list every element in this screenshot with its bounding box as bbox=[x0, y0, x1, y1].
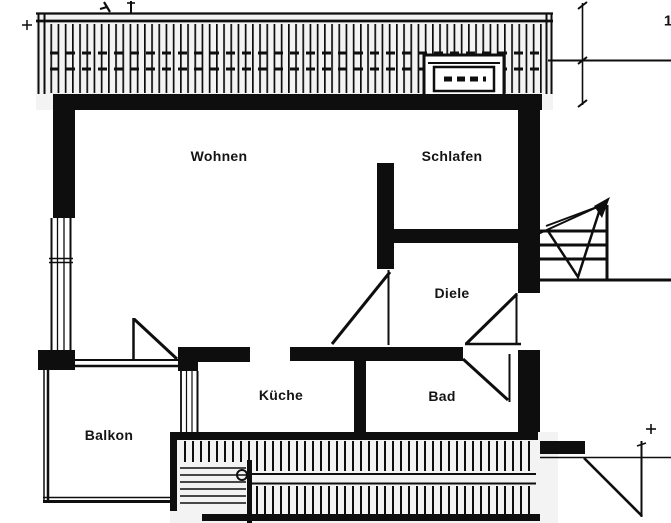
kitchen-balcony-window bbox=[181, 371, 198, 432]
page-number: 1 bbox=[664, 13, 671, 30]
terrace-stairs-hatch-bottom bbox=[170, 432, 558, 523]
staircase-with-direction-arrow bbox=[538, 197, 671, 281]
balcony-window-sill bbox=[75, 360, 178, 366]
window-left bbox=[49, 218, 73, 350]
balcony-door-swing bbox=[134, 318, 178, 360]
room-label-kueche: Küche bbox=[259, 387, 303, 403]
room-label-diele: Diele bbox=[435, 285, 470, 301]
room-door-swing-diele bbox=[332, 270, 390, 345]
floor-plan-page: Wohnen Schlafen Diele Küche Bad Balkon 1 bbox=[0, 0, 671, 523]
roof-window bbox=[424, 55, 504, 98]
room-label-balkon: Balkon bbox=[85, 427, 133, 443]
room-label-schlafen: Schlafen bbox=[422, 148, 483, 164]
dimension-lines bbox=[548, 2, 671, 107]
room-label-wohnen: Wohnen bbox=[191, 148, 248, 164]
entry-door-swing bbox=[465, 293, 521, 344]
bath-door-swing bbox=[463, 354, 510, 402]
floor-plan-drawing bbox=[0, 0, 671, 523]
room-label-bad: Bad bbox=[428, 388, 455, 404]
neighbor-door-swing bbox=[540, 424, 671, 517]
